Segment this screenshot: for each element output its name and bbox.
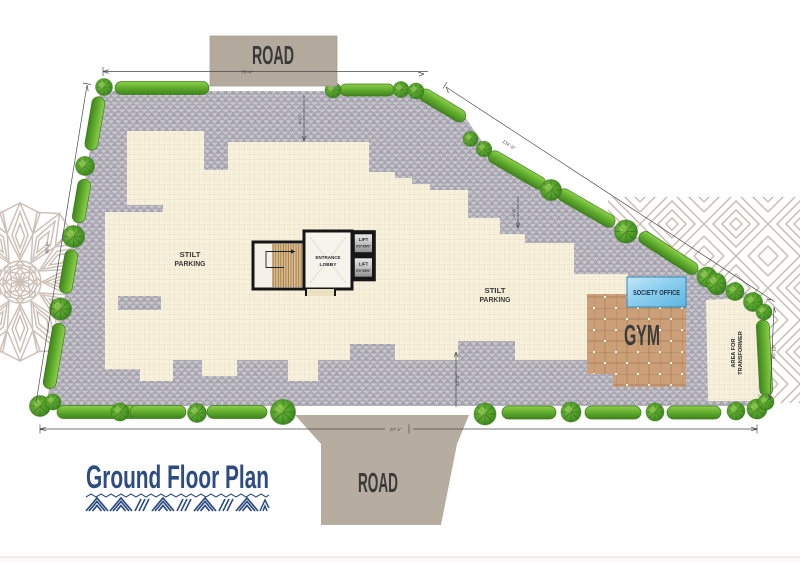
svg-text:ROAD: ROAD: [358, 467, 398, 498]
svg-text:4'-0": 4'-0": [298, 115, 303, 125]
svg-text:SOCIETY OFFICE: SOCIETY OFFICE: [633, 288, 680, 297]
svg-text:LIFT: LIFT: [359, 237, 369, 242]
svg-text:45'-10": 45'-10": [771, 344, 777, 359]
svg-text:5'0"X5'0": 5'0"X5'0": [356, 268, 371, 273]
svg-text:Ground Floor Plan: Ground Floor Plan: [86, 459, 269, 495]
svg-text:AREA FOR: AREA FOR: [731, 338, 737, 367]
svg-text:97'-1": 97'-1": [390, 427, 402, 432]
svg-text:GYM: GYM: [624, 320, 660, 352]
svg-text:PARKING: PARKING: [175, 259, 206, 268]
svg-text:76'-4": 76'-4": [241, 70, 253, 75]
svg-text:5'0"X5'0": 5'0"X5'0": [356, 244, 371, 249]
svg-text:42'-0": 42'-0": [455, 374, 460, 386]
svg-text:ENTRANCE: ENTRANCE: [316, 255, 342, 261]
svg-text:98'-0": 98'-0": [44, 241, 51, 254]
svg-text:PARKING: PARKING: [480, 295, 511, 304]
svg-text:ROAD: ROAD: [252, 40, 294, 70]
svg-text:LIFT: LIFT: [359, 262, 369, 267]
svg-text:LOBBY: LOBBY: [320, 262, 338, 268]
svg-text:TRANSFORMER: TRANSFORMER: [738, 331, 744, 375]
svg-text:4'-0": 4'-0": [512, 207, 517, 217]
svg-text:134'-9": 134'-9": [501, 139, 516, 151]
svg-text:STILT: STILT: [180, 250, 201, 259]
svg-text:STILT: STILT: [485, 286, 506, 295]
